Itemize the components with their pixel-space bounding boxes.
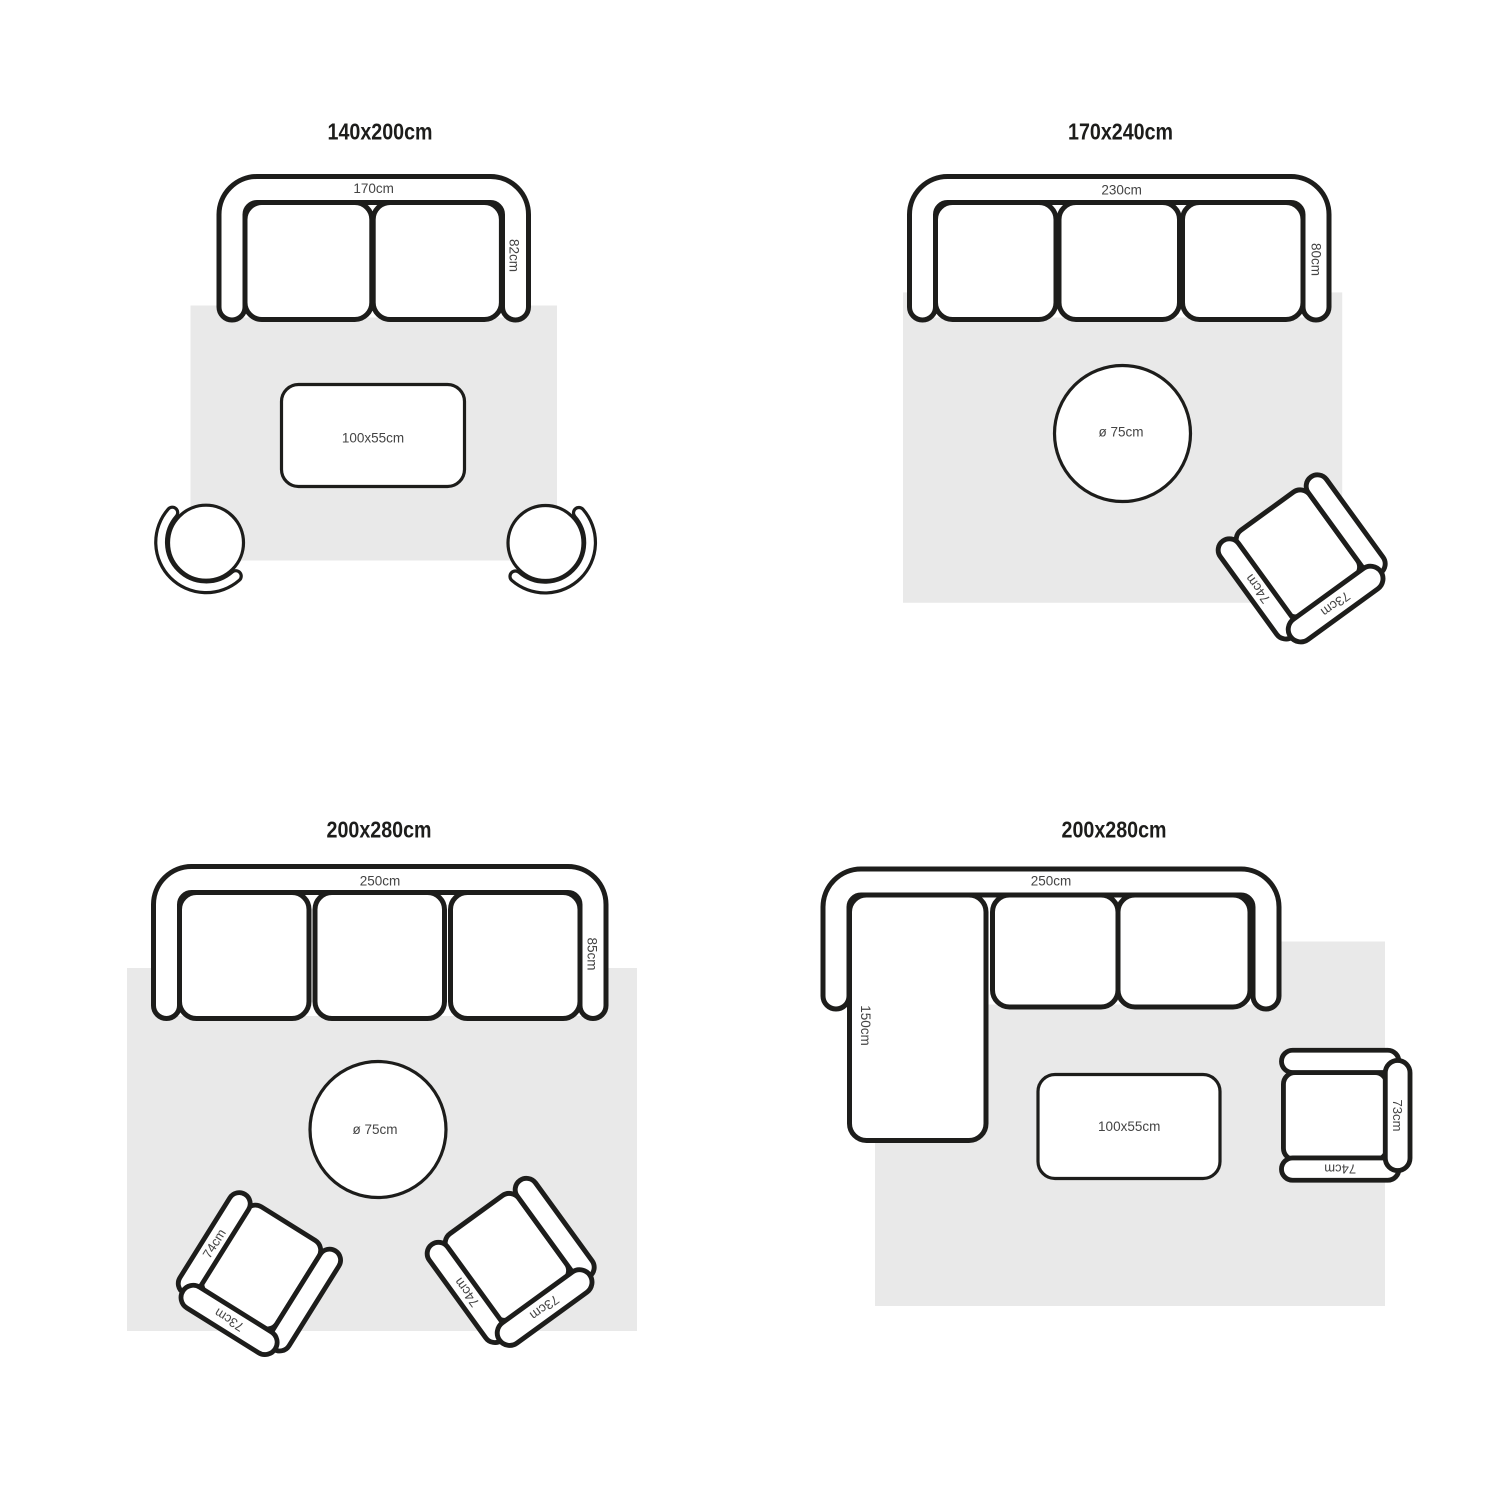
svg-text:82cm: 82cm <box>506 239 521 272</box>
svg-text:200x280cm: 200x280cm <box>327 817 432 843</box>
svg-text:150cm: 150cm <box>858 1005 873 1046</box>
svg-text:ø 75cm: ø 75cm <box>1098 425 1143 440</box>
svg-text:100x55cm: 100x55cm <box>342 430 404 445</box>
svg-text:250cm: 250cm <box>360 874 401 889</box>
svg-text:ø 75cm: ø 75cm <box>352 1122 397 1137</box>
svg-text:85cm: 85cm <box>584 937 599 970</box>
svg-text:100x55cm: 100x55cm <box>1098 1119 1160 1134</box>
svg-text:170x240cm: 170x240cm <box>1068 119 1173 145</box>
svg-text:80cm: 80cm <box>1308 243 1323 276</box>
svg-text:140x200cm: 140x200cm <box>328 119 433 145</box>
svg-text:200x280cm: 200x280cm <box>1062 817 1167 843</box>
svg-text:230cm: 230cm <box>1101 182 1142 197</box>
svg-text:250cm: 250cm <box>1031 874 1072 889</box>
svg-text:170cm: 170cm <box>353 181 394 196</box>
